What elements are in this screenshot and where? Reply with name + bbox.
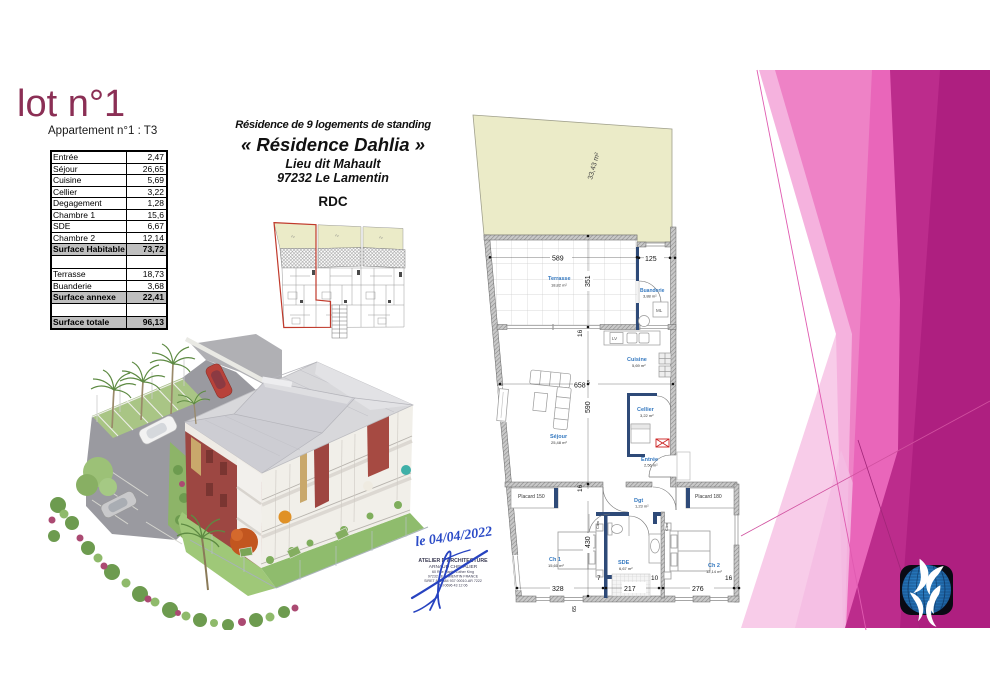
svg-text:430: 430 [585, 536, 592, 548]
svg-text:Placard 180: Placard 180 [695, 494, 722, 500]
svg-text:351: 351 [585, 275, 592, 287]
svg-text:12,14 m²: 12,14 m² [706, 569, 722, 574]
svg-text:276: 276 [692, 586, 704, 593]
svg-text:590: 590 [585, 401, 592, 413]
svg-text:328: 328 [552, 586, 564, 593]
svg-text:Clim: Clim [664, 522, 669, 531]
svg-text:589: 589 [552, 256, 564, 263]
svg-text:217: 217 [624, 586, 636, 593]
svg-text:2,56 m²: 2,56 m² [644, 463, 658, 468]
svg-text:125: 125 [645, 256, 657, 263]
svg-text:16: 16 [577, 329, 584, 337]
svg-text:le 04/04/2022: le 04/04/2022 [415, 524, 494, 550]
svg-text:15,60 m²: 15,60 m² [548, 563, 564, 568]
svg-text:16: 16 [725, 575, 733, 582]
svg-text:3,88 m²: 3,88 m² [643, 294, 657, 299]
svg-text:Tél 0696 43 12 06: Tél 0696 43 12 06 [439, 584, 468, 588]
svg-text:LV: LV [612, 336, 617, 341]
svg-text:Clim: Clim [595, 520, 600, 529]
svg-text:3,22 m²: 3,22 m² [640, 413, 654, 418]
svg-text:6,67 m²: 6,67 m² [619, 566, 633, 571]
svg-text:25,48 m²: 25,48 m² [551, 440, 567, 445]
svg-text:1,23 m²: 1,23 m² [635, 504, 649, 509]
svg-text:ATELIER D'ARCHITECTURE: ATELIER D'ARCHITECTURE [418, 558, 488, 564]
svg-text:SIRET 892 384 937 00010-AR 722: SIRET 892 384 937 00010-AR 7222 [424, 579, 482, 583]
svg-text:10: 10 [651, 575, 659, 582]
svg-text:16: 16 [577, 484, 584, 492]
svg-text:18,82 m²: 18,82 m² [551, 283, 567, 288]
svg-text:658: 658 [574, 383, 586, 390]
svg-text:Placard 150: Placard 150 [518, 494, 545, 500]
svg-text:7: 7 [597, 575, 601, 582]
svg-text:Terrasse: Terrasse [548, 276, 571, 282]
svg-text:65: 65 [572, 606, 578, 612]
svg-text:97232 LE LAMENTIN FRANCE: 97232 LE LAMENTIN FRANCE [428, 575, 479, 579]
svg-text:ML: ML [656, 308, 663, 313]
svg-text:5,69 m²: 5,69 m² [632, 363, 646, 368]
